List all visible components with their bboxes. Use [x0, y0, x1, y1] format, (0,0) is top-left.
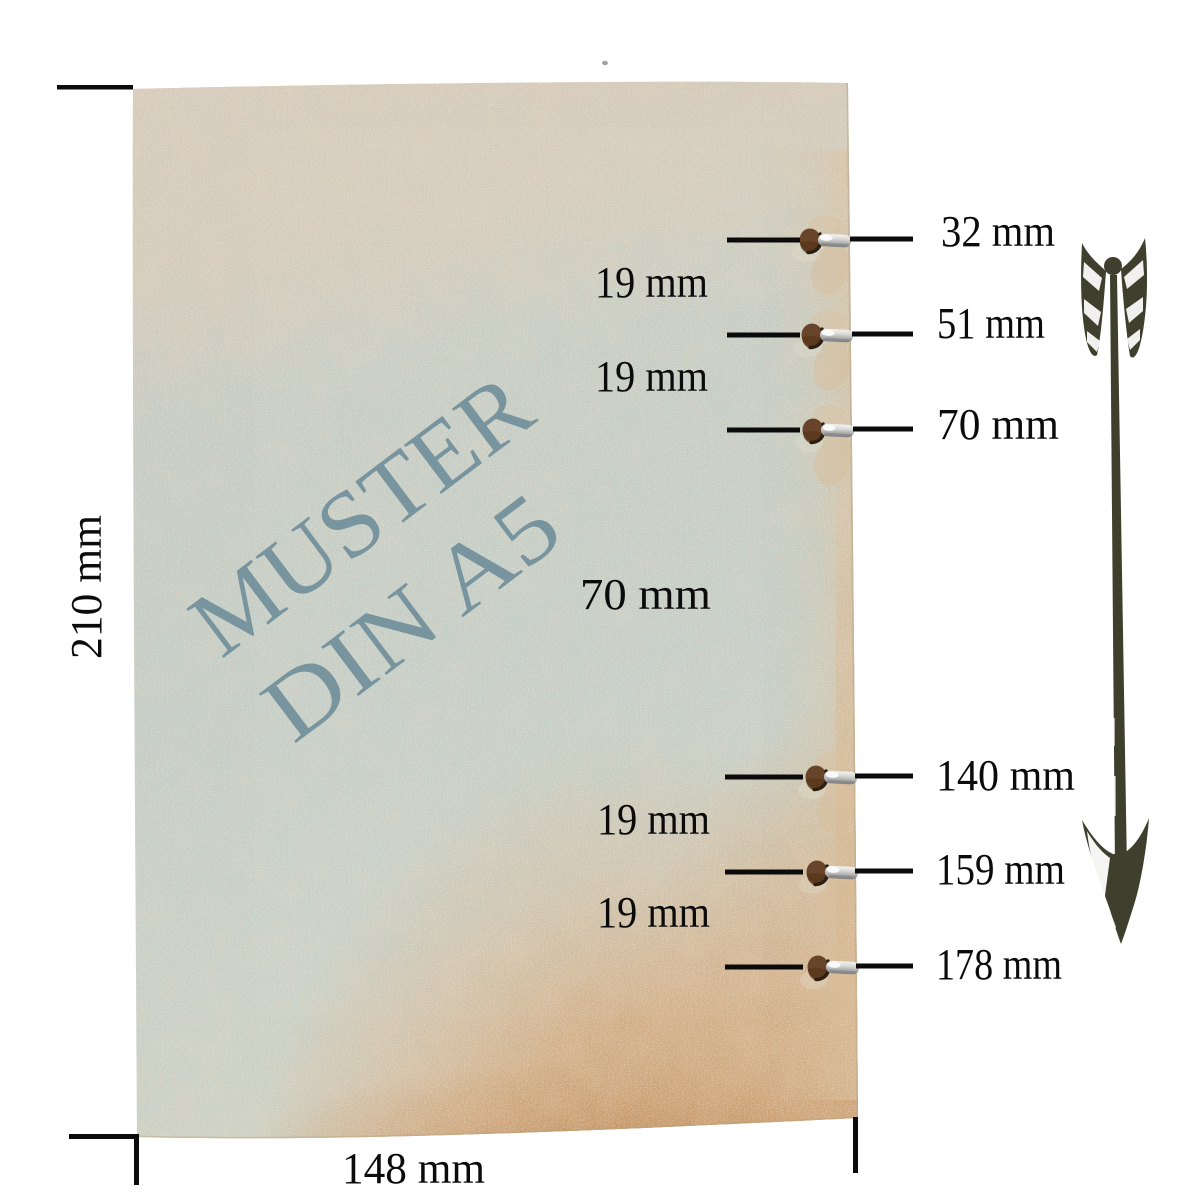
svg-text:32 mm: 32 mm — [941, 207, 1055, 256]
svg-text:70 mm: 70 mm — [580, 570, 711, 619]
svg-text:19 mm: 19 mm — [595, 352, 708, 401]
svg-text:178 mm: 178 mm — [936, 940, 1062, 989]
svg-text:210 mm: 210 mm — [62, 515, 111, 659]
svg-text:19 mm: 19 mm — [597, 795, 710, 844]
svg-text:159 mm: 159 mm — [936, 845, 1065, 894]
svg-text:19 mm: 19 mm — [597, 888, 710, 937]
svg-text:140 mm: 140 mm — [936, 751, 1075, 800]
svg-text:148 mm: 148 mm — [342, 1144, 485, 1193]
svg-text:70 mm: 70 mm — [937, 400, 1059, 449]
svg-text:51 mm: 51 mm — [937, 299, 1045, 348]
svg-text:19 mm: 19 mm — [595, 258, 708, 307]
